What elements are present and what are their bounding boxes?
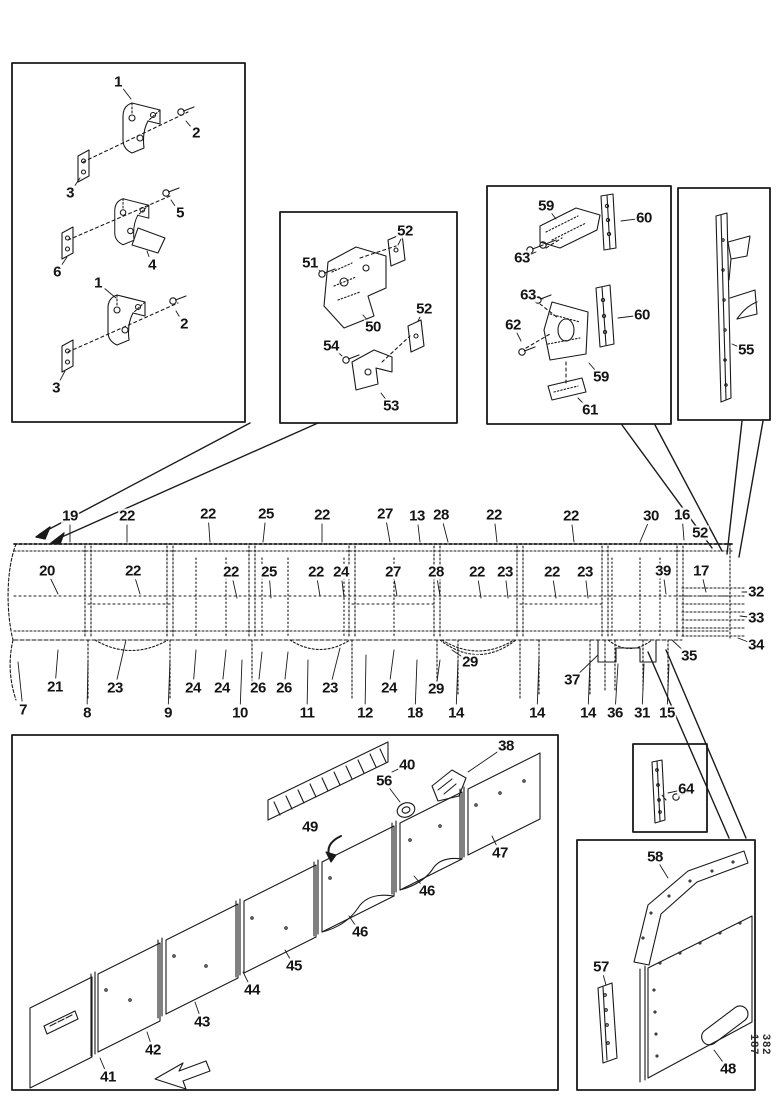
label-leader [589,363,595,370]
label-leader [714,1050,723,1062]
label-leader [468,751,499,772]
label-leader [240,660,242,704]
label-leader [672,640,682,650]
label-leader [603,976,606,985]
inset-bracket-50-parts [319,234,424,390]
label-leader [668,791,677,793]
label-leader [263,523,265,542]
label-leader [117,640,126,679]
label-leader [381,393,386,399]
label-leader [551,213,556,219]
label-leader [136,580,140,594]
arrowhead [36,527,50,539]
inset-box-rear-panel [577,840,755,1090]
inset-box-bracket-59 [487,186,671,424]
label-leader [443,524,448,542]
label-leader [18,662,22,701]
figure-number: 382 187 [748,1034,772,1055]
label-leader [517,333,521,341]
inset-bracket-59-parts [519,194,616,400]
part-48-panel [648,916,752,1078]
label-leader [732,344,738,346]
label-leader [578,398,584,404]
label-leader [586,581,588,598]
part-38-bracket [432,770,466,801]
label-leader [186,121,190,126]
label-leader [195,1002,199,1014]
label-leader [572,525,574,542]
arrowhead [51,533,64,544]
label-leader [478,581,481,598]
label-leader-lines [18,89,748,1069]
label-leader [60,371,65,380]
label-leader [495,524,497,542]
label-leader [437,660,440,680]
label-leader [390,650,394,679]
inset-rear-panel-parts [598,851,752,1082]
label-leader [392,769,399,772]
inset-box-strip-64 [633,744,707,832]
label-leader [578,655,598,674]
label-leader [147,1032,150,1041]
label-leader [387,523,390,542]
label-leader [105,289,116,298]
frame-side-band [8,544,744,700]
label-leader [51,579,58,594]
label-leader [738,638,748,642]
label-leader [285,652,288,679]
diagram-artwork [0,0,778,1100]
label-leader [223,650,226,679]
label-leader [553,581,556,598]
label-leader [209,523,210,542]
label-leader [147,251,149,257]
inset-leader-lines [36,421,763,838]
label-leader [740,616,747,617]
label-leader [243,972,248,982]
label-leader [683,524,684,540]
label-leader [317,581,320,596]
label-leader [621,219,635,221]
label-leader [664,580,666,594]
label-leader [640,524,647,542]
part-57-strip [598,983,617,1063]
panel-slot [698,1003,751,1048]
inset-box-side-panels [12,735,558,1090]
inset-strip-64-parts [652,760,689,823]
cross-member-posts [85,546,683,698]
label-leader [394,581,397,596]
label-leader [332,648,340,679]
label-leader [418,525,420,542]
label-leader [317,269,320,271]
inset-post-55-parts [716,213,757,402]
label-leader [270,581,271,598]
direction-arrow [155,1061,210,1089]
label-leader [365,655,366,704]
inset-box-bracket-50 [280,212,457,423]
label-leader [56,650,58,678]
label-leader [616,664,618,704]
label-leader [506,581,508,598]
label-leader [492,836,496,845]
label-leader [100,1058,105,1069]
label-leader [259,652,262,679]
label-leader [307,660,308,704]
label-leader [415,660,417,704]
label-leader [233,581,237,598]
label-leader [338,352,342,356]
label-leader [194,650,196,679]
label-leader [660,865,668,878]
parts-catalog-page: 1235641235251505254535960636362605961551… [0,0,778,1100]
part-58-channel [634,851,748,965]
label-leader [618,316,633,318]
label-leader [389,788,400,802]
label-leader [703,580,706,592]
label-leader [176,311,179,316]
label-leader [398,239,401,245]
label-leader [171,200,175,206]
inset-side-panels-parts [30,742,540,1089]
inset-front-brackets-parts [62,103,194,372]
label-leader [123,89,131,99]
